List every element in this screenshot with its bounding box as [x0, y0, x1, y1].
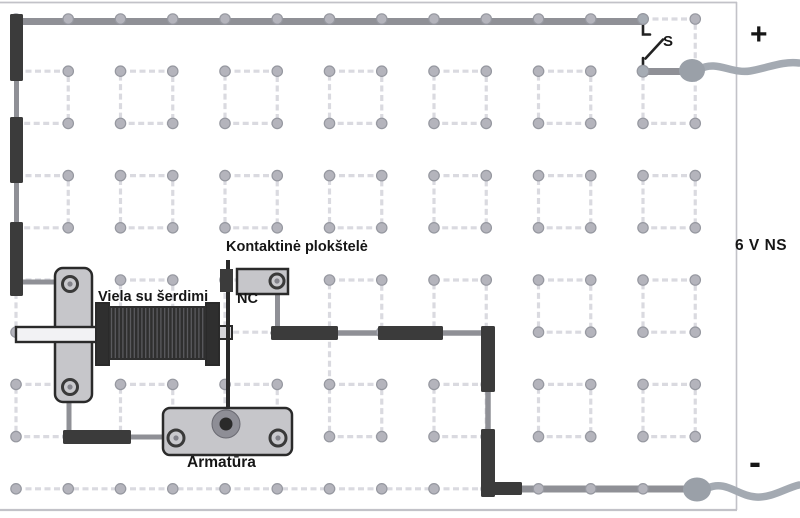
dark-wire-segment: [10, 117, 23, 183]
peg: [220, 14, 230, 24]
peg: [272, 14, 282, 24]
peg: [377, 275, 387, 285]
peg: [586, 118, 596, 128]
peg: [115, 66, 125, 76]
peg: [168, 118, 178, 128]
peg: [690, 118, 700, 128]
peg: [115, 275, 125, 285]
peg: [377, 14, 387, 24]
peg: [429, 223, 439, 233]
peg: [324, 379, 334, 389]
peg: [115, 170, 125, 180]
positive-lead-wire: [700, 63, 799, 72]
peg: [481, 14, 491, 24]
positive-terminal-blob: [679, 59, 705, 82]
peg: [272, 484, 282, 494]
peg: [429, 484, 439, 494]
peg: [377, 118, 387, 128]
peg: [586, 431, 596, 441]
peg: [638, 431, 648, 441]
peg: [638, 327, 648, 337]
peg: [586, 275, 596, 285]
peg: [377, 170, 387, 180]
peg: [272, 66, 282, 76]
peg: [586, 327, 596, 337]
coil-label: Viela su šerdimi: [98, 290, 208, 305]
peg: [377, 223, 387, 233]
peg: [324, 14, 334, 24]
peg: [586, 484, 596, 494]
pivot-center: [220, 418, 233, 431]
peg: [377, 66, 387, 76]
peg: [533, 275, 543, 285]
peg: [533, 484, 543, 494]
peg: [377, 379, 387, 389]
peg: [690, 170, 700, 180]
peg: [63, 118, 73, 128]
peg: [533, 66, 543, 76]
moving-contact: [220, 269, 233, 292]
peg: [220, 118, 230, 128]
peg: [586, 14, 596, 24]
peg: [533, 14, 543, 24]
peg: [11, 379, 21, 389]
circuit-board-canvas: [0, 0, 800, 518]
peg: [533, 379, 543, 389]
peg: [586, 223, 596, 233]
peg: [638, 223, 648, 233]
peg: [220, 484, 230, 494]
peg: [63, 14, 73, 24]
peg: [115, 484, 125, 494]
peg: [690, 379, 700, 389]
peg: [220, 170, 230, 180]
peg: [324, 66, 334, 76]
peg: [481, 275, 491, 285]
peg: [690, 431, 700, 441]
peg: [690, 14, 700, 24]
peg: [324, 170, 334, 180]
peg: [272, 379, 282, 389]
peg: [533, 223, 543, 233]
peg: [220, 66, 230, 76]
switch-fixed-contact: [643, 24, 650, 35]
peg: [63, 170, 73, 180]
peg: [168, 484, 178, 494]
peg: [115, 118, 125, 128]
peg: [272, 223, 282, 233]
peg: [377, 484, 387, 494]
switch-label: S: [663, 34, 673, 49]
peg: [168, 223, 178, 233]
peg: [638, 118, 648, 128]
peg: [429, 170, 439, 180]
peg: [481, 118, 491, 128]
peg: [429, 66, 439, 76]
peg: [115, 379, 125, 389]
peg: [429, 275, 439, 285]
negative-terminal-blob: [683, 478, 711, 502]
peg: [429, 118, 439, 128]
dark-wire-segment: [271, 326, 338, 340]
dark-wire-segment: [481, 326, 495, 392]
peg: [272, 118, 282, 128]
peg: [63, 66, 73, 76]
switch: [637, 14, 663, 77]
peg: [63, 223, 73, 233]
battery-voltage-label: 6 V NS: [735, 238, 787, 254]
armature-base: [163, 408, 292, 455]
peg: [481, 223, 491, 233]
peg: [11, 484, 21, 494]
peg: [168, 14, 178, 24]
dark-wire-segment: [10, 14, 23, 81]
peg: [324, 223, 334, 233]
peg: [690, 223, 700, 233]
dark-wire-segment: [378, 326, 443, 340]
peg: [11, 431, 21, 441]
peg: [324, 431, 334, 441]
peg: [429, 14, 439, 24]
peg: [586, 170, 596, 180]
peg: [168, 379, 178, 389]
peg: [220, 223, 230, 233]
peg: [168, 170, 178, 180]
peg: [429, 379, 439, 389]
dark-wire-segment: [63, 430, 131, 444]
peg: [324, 275, 334, 285]
peg: [377, 431, 387, 441]
peg: [481, 66, 491, 76]
peg: [168, 275, 178, 285]
peg: [324, 484, 334, 494]
pegboard-circuit-diagram: Viela su šerdimi Kontaktinė plokštelė NC…: [0, 0, 800, 518]
peg: [638, 379, 648, 389]
dark-wire-segment: [488, 482, 522, 495]
negative-lead-wire: [708, 485, 799, 497]
peg: [481, 170, 491, 180]
nc-label: NC: [237, 292, 258, 307]
peg: [115, 14, 125, 24]
coil-winding: [96, 303, 219, 365]
peg: [324, 118, 334, 128]
switch-blade: [646, 40, 664, 59]
peg: [533, 118, 543, 128]
negative-terminal-label: -: [749, 444, 761, 480]
dark-wire-segment: [10, 222, 23, 296]
peg: [586, 66, 596, 76]
peg: [638, 170, 648, 180]
peg: [586, 379, 596, 389]
peg: [429, 431, 439, 441]
peg: [638, 484, 648, 494]
armature-label: Armatūra: [187, 455, 256, 471]
peg: [690, 327, 700, 337]
peg: [63, 484, 73, 494]
peg: [115, 223, 125, 233]
peg: [638, 275, 648, 285]
peg: [533, 327, 543, 337]
peg: [272, 170, 282, 180]
peg: [533, 431, 543, 441]
peg: [168, 66, 178, 76]
peg: [533, 170, 543, 180]
contact-plate-label: Kontaktinė plokštelė: [226, 240, 368, 255]
peg: [690, 275, 700, 285]
positive-terminal-label: +: [750, 20, 768, 50]
